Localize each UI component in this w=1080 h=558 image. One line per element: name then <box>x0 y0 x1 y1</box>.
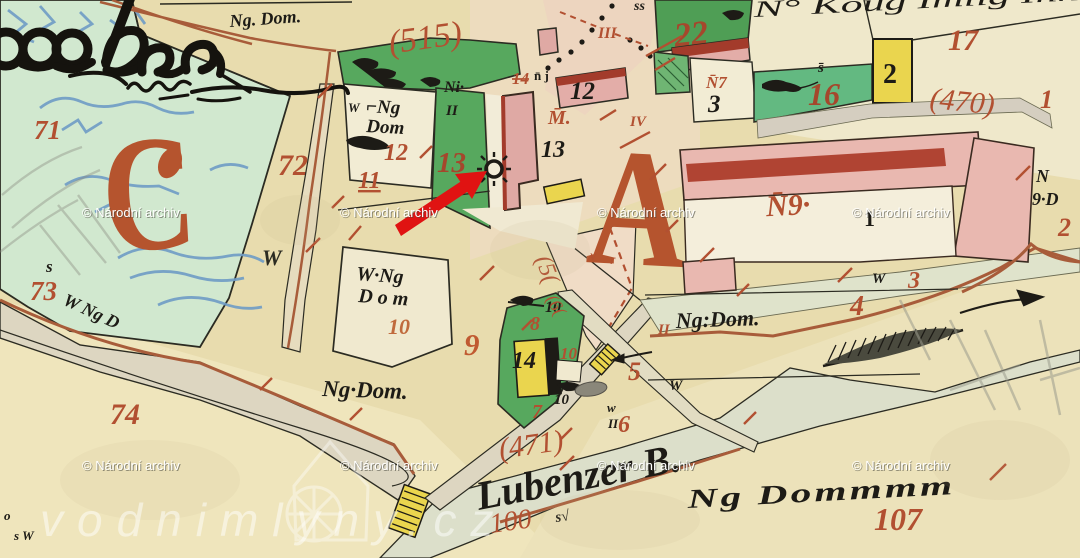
svg-text:17: 17 <box>948 24 979 57</box>
svg-text:Dom: Dom <box>365 116 405 139</box>
svg-text:r: r <box>610 253 616 268</box>
svg-text:5: 5 <box>628 357 641 386</box>
svg-text:© Národní archiv: © Národní archiv <box>597 205 695 220</box>
svg-text:13: 13 <box>541 137 565 163</box>
svg-text:vodnimlyny.cz: vodnimlyny.cz <box>40 494 507 546</box>
svg-text:6: 6 <box>618 412 630 438</box>
svg-text:(470): (470) <box>928 82 996 122</box>
svg-text:8: 8 <box>530 313 540 335</box>
svg-text:M̄.: M̄. <box>547 107 571 129</box>
svg-text:12: 12 <box>570 78 595 105</box>
svg-text:o: o <box>4 508 11 523</box>
svg-text:W: W <box>669 378 684 394</box>
svg-text:73: 73 <box>30 276 57 306</box>
svg-text:9: 9 <box>464 327 480 362</box>
svg-text:10: 10 <box>388 314 410 339</box>
svg-text:N̄7: N̄7 <box>705 73 728 92</box>
svg-text:3: 3 <box>707 91 721 118</box>
svg-text:9·D: 9·D <box>1032 189 1059 209</box>
svg-text:W: W <box>348 100 361 115</box>
svg-text:D o m: D o m <box>357 285 409 311</box>
svg-text:© Národní archiv: © Národní archiv <box>852 458 950 473</box>
svg-text:3: 3 <box>907 268 920 294</box>
svg-text:Ng:Dom.: Ng:Dom. <box>674 305 760 333</box>
svg-text:W: W <box>262 245 283 270</box>
svg-text:N̄9·: N̄9· <box>764 188 811 223</box>
svg-text:© Národní archiv: © Národní archiv <box>852 205 950 220</box>
svg-text:4: 4 <box>849 291 864 322</box>
svg-text:© Národní archiv: © Národní archiv <box>340 458 438 473</box>
svg-text:Ni·: Ni· <box>443 79 464 96</box>
svg-text:2: 2 <box>1057 213 1071 242</box>
svg-text:ss: ss <box>633 0 645 14</box>
svg-text:1: 1 <box>1040 85 1053 114</box>
svg-text:11: 11 <box>358 168 381 194</box>
svg-text:III: III <box>597 25 617 42</box>
svg-text:© Národní archiv: © Národní archiv <box>340 205 438 220</box>
svg-text:II: II <box>445 103 459 119</box>
svg-text:n̄ j: n̄ j <box>534 68 549 83</box>
svg-text:w: w <box>607 400 616 415</box>
svg-text:© Národní archiv: © Národní archiv <box>82 205 180 220</box>
svg-text:s̄: s̄ <box>817 60 824 76</box>
svg-text:s W: s W <box>13 528 35 543</box>
svg-text:72: 72 <box>278 149 308 182</box>
svg-text:74: 74 <box>110 398 140 431</box>
svg-text:14: 14 <box>512 348 536 374</box>
svg-text:C: C <box>96 100 201 289</box>
svg-text:2: 2 <box>883 59 897 90</box>
svg-text:s: s <box>45 257 53 276</box>
svg-text:10: 10 <box>554 392 570 408</box>
svg-text:II: II <box>657 322 671 338</box>
svg-text:14: 14 <box>512 69 529 88</box>
svg-text:107: 107 <box>874 501 924 537</box>
svg-text:W: W <box>872 271 887 287</box>
svg-text:71: 71 <box>34 115 61 145</box>
svg-text:12: 12 <box>384 140 408 166</box>
svg-text:© Národní archiv: © Národní archiv <box>597 458 695 473</box>
svg-text:10: 10 <box>560 344 578 363</box>
svg-text:N: N <box>1035 166 1050 186</box>
svg-text:v: v <box>590 249 597 264</box>
svg-text:Ng·Dom.: Ng·Dom. <box>321 376 408 404</box>
svg-text:7: 7 <box>532 401 543 423</box>
svg-text:16: 16 <box>808 76 840 112</box>
svg-text:© Národní archiv: © Národní archiv <box>82 458 180 473</box>
